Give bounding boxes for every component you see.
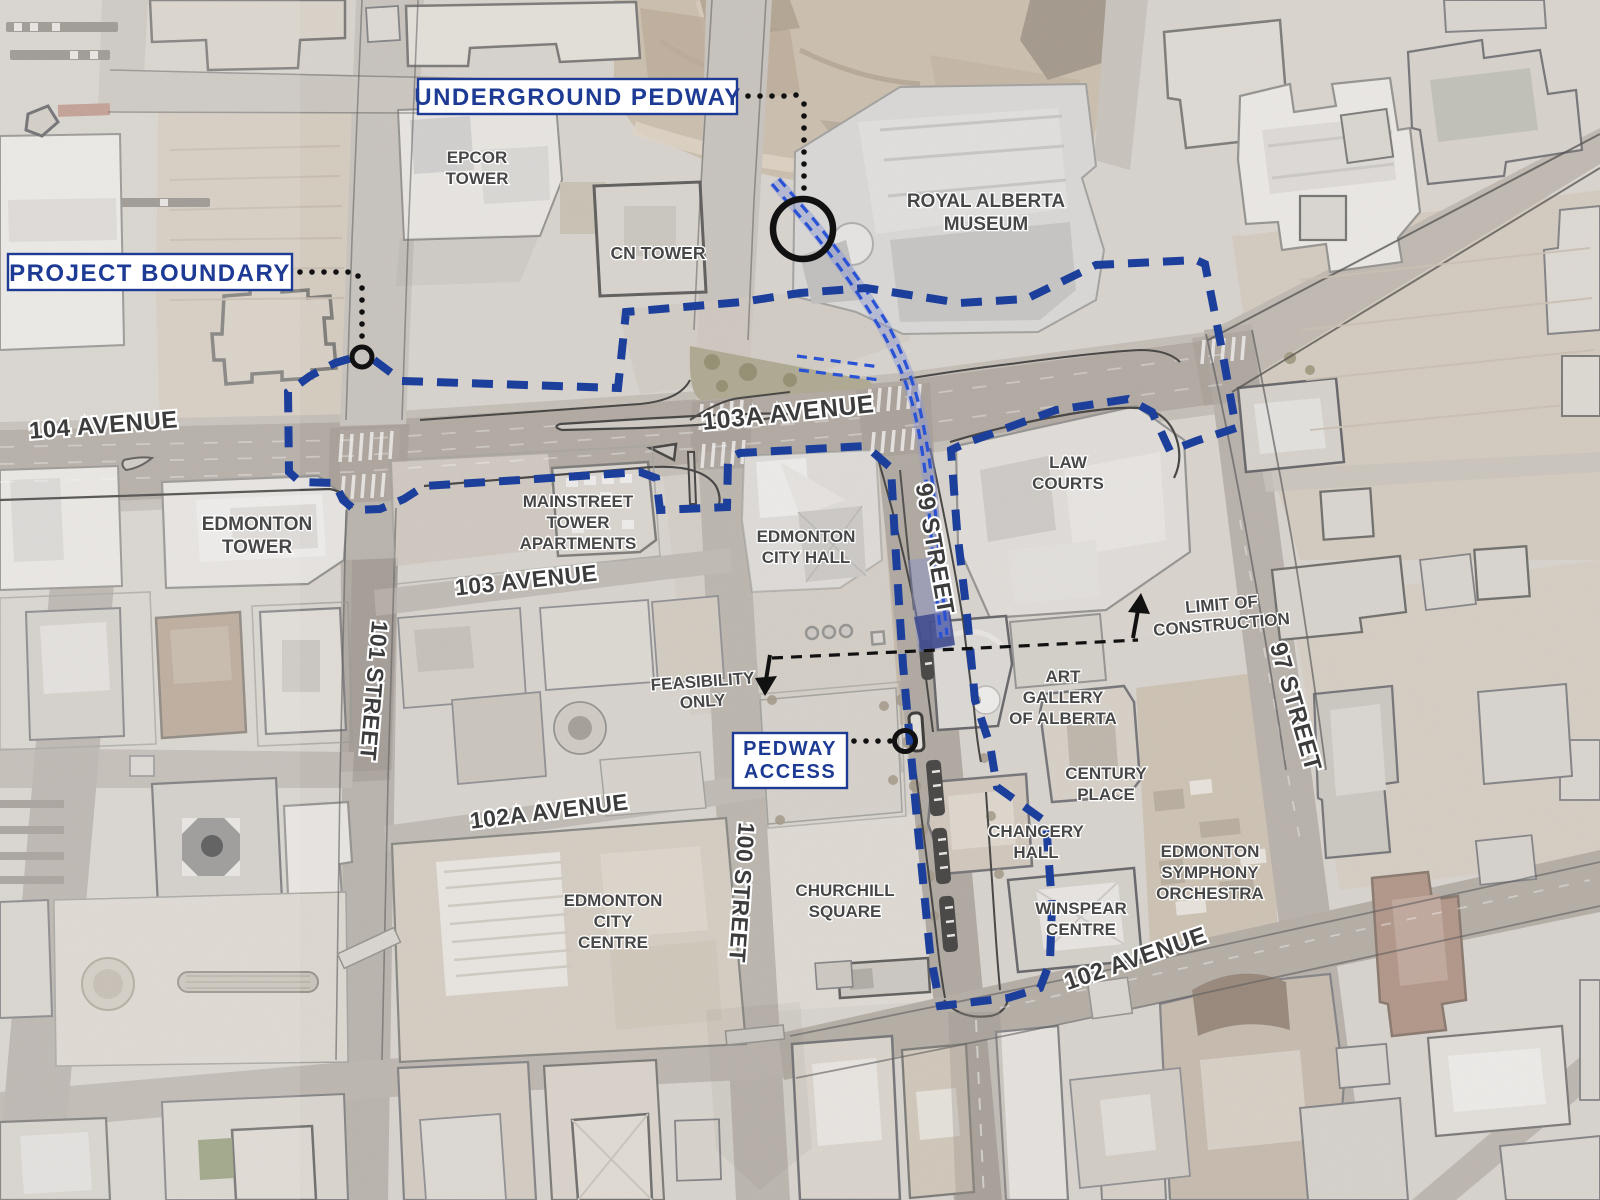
- svg-text:ORCHESTRA: ORCHESTRA: [1156, 884, 1264, 903]
- svg-text:CN TOWER: CN TOWER: [611, 243, 706, 263]
- svg-text:ONLY: ONLY: [679, 690, 727, 712]
- svg-text:ART: ART: [1046, 667, 1082, 686]
- svg-text:CENTRE: CENTRE: [578, 933, 648, 952]
- svg-text:CENTURY: CENTURY: [1065, 764, 1147, 783]
- svg-text:LAW: LAW: [1049, 453, 1088, 472]
- svg-text:EDMONTON: EDMONTON: [1161, 842, 1260, 861]
- svg-text:TOWER: TOWER: [547, 513, 610, 532]
- svg-text:CENTRE: CENTRE: [1046, 920, 1116, 939]
- svg-text:CITY: CITY: [594, 912, 633, 931]
- svg-text:WINSPEAR: WINSPEAR: [1035, 899, 1127, 918]
- svg-text:CHANCERY: CHANCERY: [988, 822, 1084, 841]
- svg-text:SQUARE: SQUARE: [809, 902, 882, 921]
- svg-text:CITY HALL: CITY HALL: [762, 548, 850, 567]
- svg-text:HALL: HALL: [1013, 843, 1058, 862]
- svg-text:MAINSTREET: MAINSTREET: [523, 492, 634, 511]
- svg-text:EDMONTON: EDMONTON: [757, 527, 856, 546]
- svg-text:SYMPHONY: SYMPHONY: [1161, 863, 1259, 882]
- svg-text:ACCESS: ACCESS: [744, 761, 836, 783]
- svg-text:GALLERY: GALLERY: [1023, 688, 1104, 707]
- svg-text:COURTS: COURTS: [1032, 474, 1104, 493]
- svg-text:TOWER: TOWER: [446, 169, 509, 188]
- svg-text:APARTMENTS: APARTMENTS: [520, 534, 637, 553]
- svg-text:PLACE: PLACE: [1077, 785, 1135, 804]
- svg-text:EDMONTON: EDMONTON: [564, 891, 663, 910]
- svg-text:UNDERGROUND PEDWAY: UNDERGROUND PEDWAY: [414, 84, 741, 111]
- svg-text:TOWER: TOWER: [222, 537, 293, 558]
- svg-text:OF ALBERTA: OF ALBERTA: [1009, 709, 1117, 728]
- svg-text:CHURCHILL: CHURCHILL: [795, 881, 894, 900]
- svg-text:MUSEUM: MUSEUM: [944, 214, 1028, 235]
- svg-text:EPCOR: EPCOR: [447, 148, 507, 167]
- svg-text:PEDWAY: PEDWAY: [743, 738, 837, 760]
- svg-text:PROJECT BOUNDARY: PROJECT BOUNDARY: [9, 260, 291, 287]
- svg-text:ROYAL ALBERTA: ROYAL ALBERTA: [907, 191, 1066, 212]
- svg-text:EDMONTON: EDMONTON: [202, 514, 312, 535]
